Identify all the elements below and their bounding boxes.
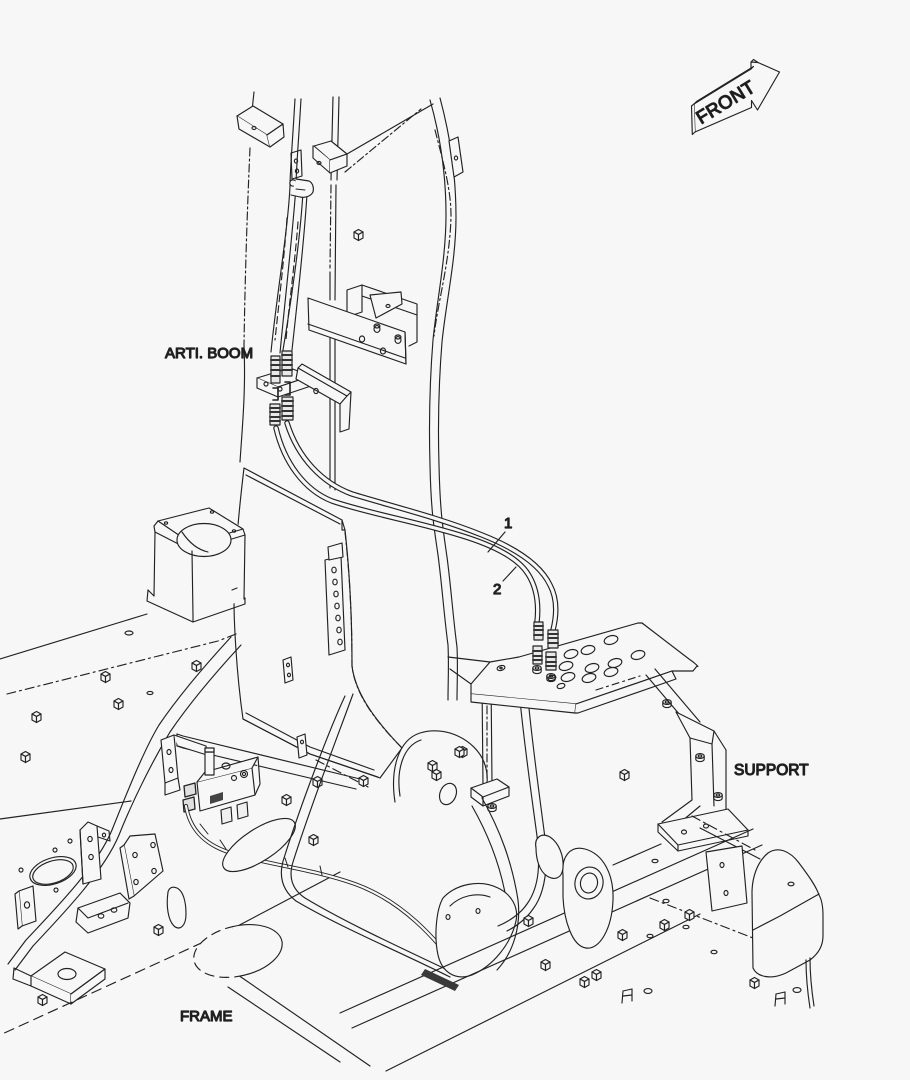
svg-text:FRAME: FRAME	[180, 1008, 233, 1025]
svg-text:1: 1	[504, 515, 512, 532]
svg-text:ARTI. BOOM: ARTI. BOOM	[165, 345, 253, 362]
svg-text:2: 2	[493, 581, 501, 598]
svg-text:SUPPORT: SUPPORT	[734, 762, 809, 779]
